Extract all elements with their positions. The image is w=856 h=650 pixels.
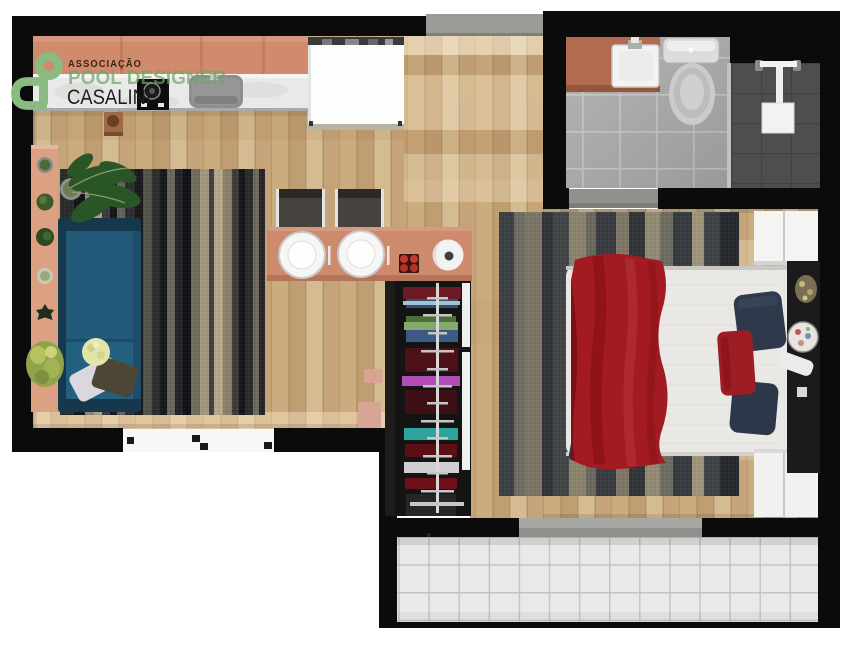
svg-text:CASALINI: CASALINI <box>67 86 151 109</box>
